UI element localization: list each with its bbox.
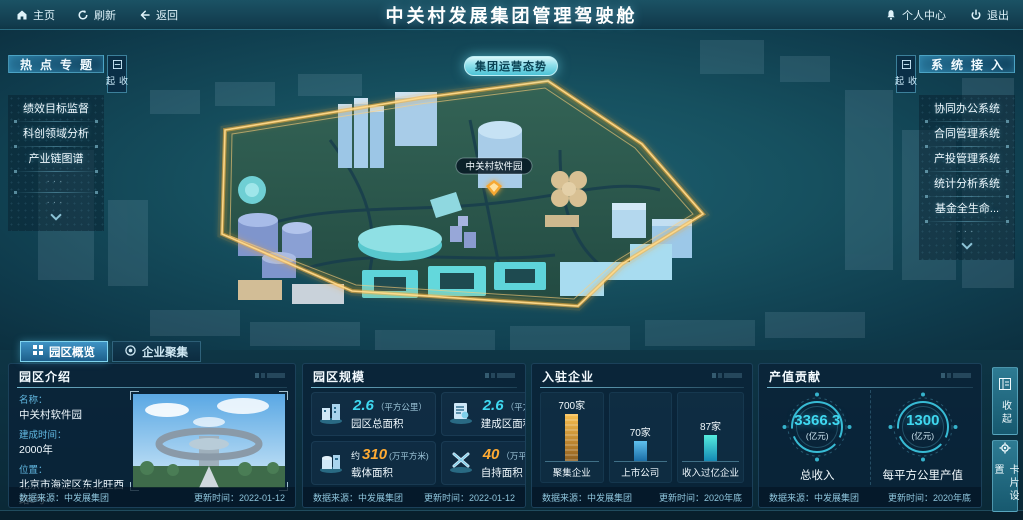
- panel-title: 园区介绍: [9, 364, 295, 388]
- divider: [14, 146, 98, 147]
- system-item-oa[interactable]: 协同办公系统: [919, 97, 1015, 121]
- data-source: 数据来源：中发展集团: [19, 491, 109, 504]
- system-item-fund[interactable]: 基金全生命...: [919, 197, 1015, 221]
- gauge-unit: (亿元): [806, 430, 829, 442]
- target-icon: [125, 345, 136, 359]
- stat-label: 园区总面积: [351, 416, 427, 431]
- field-label: 名称：: [19, 392, 127, 406]
- gauge-value: 3366.3: [794, 412, 840, 429]
- bar-label: 聚集企业: [545, 461, 599, 479]
- panel-footer: 数据来源：中发展集团 更新时间：2022-01-12: [303, 487, 525, 507]
- collapse-label: 收起: [104, 76, 130, 92]
- gauge-output-per-sqkm: 1300 (亿元) 每平方公里产值: [870, 390, 976, 485]
- divider: [925, 196, 1009, 197]
- home-icon: [16, 9, 28, 21]
- divider: [14, 171, 98, 172]
- divider: [14, 192, 98, 193]
- menu-item-performance[interactable]: 绩效目标监督: [8, 97, 104, 121]
- field-label: 位置：: [19, 462, 127, 476]
- stat-total-area: 2.6 （平方公里） 园区总面积: [311, 392, 436, 436]
- hot-topics-panel: 热点专题 收起 绩效目标监督 科创领域分析 产业链图谱 ··· ···: [8, 55, 130, 231]
- refresh-icon: [77, 9, 89, 21]
- tab-park-overview[interactable]: 园区概览: [20, 341, 108, 362]
- left-collapse-button[interactable]: 收起: [107, 55, 127, 93]
- tab-label: 园区概览: [49, 344, 95, 360]
- panel-footer: 数据来源：中发展集团 更新时间：2020年底: [532, 487, 752, 507]
- card-settings-button[interactable]: 卡片设置: [992, 440, 1018, 512]
- bottom-strip: [0, 510, 1023, 520]
- campus-map-3d[interactable]: 中关村软件园 集团运营态势: [0, 30, 1023, 350]
- collapse-icon: [902, 56, 911, 74]
- bar-label: 收入过亿企业: [682, 461, 739, 479]
- panel-header-deco: [941, 373, 971, 378]
- panel-header-deco: [485, 373, 515, 378]
- stat-value: 2.6: [353, 397, 374, 414]
- collapse-icon: [113, 56, 122, 74]
- panel-footer: 数据来源：中发展集团 更新时间：2020年底: [759, 487, 981, 507]
- hot-topics-title: 热点专题: [20, 56, 100, 73]
- park-intro-panel: 园区介绍 名称： 中关村软件园 建成时间： 2000年 位置： 北京市海淀区东北…: [8, 363, 296, 508]
- map-scene: 中关村软件园: [0, 30, 1023, 350]
- panel-header-deco: [712, 373, 742, 378]
- bar-value: 70家: [630, 424, 651, 439]
- panel-header-deco: [255, 373, 285, 378]
- user-center-button[interactable]: 个人中心: [885, 7, 946, 23]
- stat-label: 自持面积: [481, 465, 526, 480]
- enterprise-bar-chart: 700家 聚集企业 70家 上市公司 87家 收入过亿企业: [540, 392, 744, 483]
- divider: [925, 121, 1009, 122]
- side-button-label: 收起: [998, 400, 1013, 426]
- park-photo: [133, 394, 285, 488]
- gauge-label: 每平方公里产值: [883, 467, 964, 483]
- tab-label: 企业聚集: [142, 344, 188, 360]
- collapse-label: 收起: [893, 76, 919, 92]
- logout-label: 退出: [987, 7, 1009, 23]
- divider: [925, 171, 1009, 172]
- stat-unit: (万平方米): [389, 450, 429, 462]
- field-name: 名称： 中关村软件园: [19, 392, 127, 422]
- right-collapse-button[interactable]: 收起: [896, 55, 916, 93]
- data-source: 数据来源：中发展集团: [769, 491, 859, 504]
- update-time: 更新时间：2020年底: [659, 491, 742, 504]
- stat-prefix: 约: [351, 449, 360, 462]
- dashboard-screen: 中关村发展集团管理驾驶舱 主页 刷新 返回 个人中心 退出: [0, 0, 1023, 520]
- grid-icon: [33, 345, 43, 358]
- gear-icon: [999, 441, 1011, 459]
- divider: [925, 221, 1009, 222]
- stat-unit: （万平方米）: [501, 450, 526, 462]
- power-icon: [970, 9, 982, 21]
- data-source: 数据来源：中发展集团: [313, 491, 403, 504]
- buildings-icon: [318, 399, 344, 430]
- stat-value: 2.6: [483, 397, 504, 414]
- bar-label: 上市公司: [614, 461, 668, 479]
- system-access-header: 系统接入: [919, 55, 1015, 73]
- group-operation-button[interactable]: 集团运营态势: [464, 56, 558, 76]
- bar-value: 700家: [558, 397, 585, 412]
- bar: [565, 414, 578, 461]
- back-label: 返回: [156, 7, 178, 23]
- system-item-investment[interactable]: 产投管理系统: [919, 147, 1015, 171]
- panel-footer: 数据来源：中发展集团 更新时间：2022-01-12: [9, 487, 295, 507]
- top-right-nav: 个人中心 退出: [885, 7, 1023, 23]
- refresh-label: 刷新: [94, 7, 116, 23]
- update-time: 更新时间：2020年底: [888, 491, 971, 504]
- divider: [14, 121, 98, 122]
- tab-enterprise-cluster[interactable]: 企业聚集: [112, 341, 201, 362]
- park-scale-panel: 园区规模 2.6 （平方公里） 园区总面积: [302, 363, 526, 508]
- system-access-panel: 系统接入 收起 协同办公系统 合同管理系统 产投管理系统 统计分析系统 基金全生…: [896, 55, 1018, 260]
- bar-revenue-over-100m: 87家 收入过亿企业: [677, 392, 744, 483]
- stat-unit: （平方公里）: [506, 401, 526, 413]
- back-arrow-icon: [138, 9, 151, 21]
- collapse-cards-button[interactable]: 收起: [992, 367, 1018, 435]
- cross-arrows-icon: [448, 448, 474, 479]
- document-icon: [448, 399, 474, 430]
- stat-unit: （平方公里）: [376, 401, 427, 413]
- bottom-tabs: 园区概览 企业聚集: [20, 341, 201, 362]
- update-time: 更新时间：2022-01-12: [194, 491, 285, 504]
- output-value-panel: 产值贡献 3366.3 (亿元) 总收入: [758, 363, 982, 508]
- refresh-button[interactable]: 刷新: [77, 7, 116, 23]
- bar: [704, 435, 717, 461]
- bar-value: 87家: [700, 418, 721, 433]
- stat-self-held-area: 40 （万平方米） 自持面积: [441, 441, 526, 485]
- bar-clustered-enterprises: 700家 聚集企业: [540, 392, 604, 483]
- menu-item-industry-chain[interactable]: 产业链图谱: [8, 147, 104, 171]
- gauge-unit: (亿元): [911, 430, 934, 442]
- collapse-panel-icon: [999, 377, 1011, 395]
- top-nav: 主页 刷新 返回: [0, 7, 194, 23]
- logout-button[interactable]: 退出: [970, 7, 1009, 23]
- stat-value: 40: [483, 446, 500, 463]
- system-access-title: 系统接入: [931, 56, 1011, 73]
- field-label: 建成时间：: [19, 427, 127, 441]
- stat-label: 建成区面积: [481, 416, 526, 431]
- hot-topics-header: 热点专题: [8, 55, 104, 73]
- gauge-value: 1300: [906, 412, 939, 429]
- data-source: 数据来源：中发展集团: [542, 491, 632, 504]
- stat-value: 310: [362, 446, 387, 463]
- field-value: 中关村软件园: [19, 407, 127, 422]
- menu-item-tech-analysis[interactable]: 科创领域分析: [8, 122, 104, 146]
- user-center-label: 个人中心: [902, 7, 946, 23]
- system-item-contract[interactable]: 合同管理系统: [919, 122, 1015, 146]
- stat-label: 载体面积: [351, 465, 429, 480]
- gauge-label: 总收入: [800, 467, 835, 483]
- resident-enterprises-panel: 入驻企业 700家 聚集企业 70家 上市公司 87家 收入过亿企业 数据来源：…: [531, 363, 753, 508]
- bar: [634, 441, 647, 461]
- bar-listed-companies: 70家 上市公司: [609, 392, 673, 483]
- more-items-indicator: ···: [8, 172, 104, 192]
- warehouse-icon: [318, 448, 344, 479]
- field-built-year: 建成时间： 2000年: [19, 427, 127, 457]
- field-value: 2000年: [19, 442, 127, 457]
- side-button-label: 卡片设置: [990, 464, 1020, 511]
- bell-icon: [885, 9, 897, 21]
- home-button[interactable]: 主页: [16, 7, 55, 23]
- home-label: 主页: [33, 7, 55, 23]
- park-marker-label: 中关村软件园: [465, 161, 522, 173]
- stat-built-area: 2.6 （平方公里） 建成区面积: [441, 392, 526, 436]
- update-time: 更新时间：2022-01-12: [424, 491, 515, 504]
- divider: [925, 146, 1009, 147]
- chevron-down-icon[interactable]: [8, 213, 104, 227]
- top-header-bar: 中关村发展集团管理驾驶舱 主页 刷新 返回 个人中心 退出: [0, 0, 1023, 30]
- stat-carrier-area: 约 310 (万平方米) 载体面积: [311, 441, 436, 485]
- gauge-total-revenue: 3366.3 (亿元) 总收入: [765, 390, 870, 485]
- system-item-statistics[interactable]: 统计分析系统: [919, 172, 1015, 196]
- chevron-down-icon[interactable]: [919, 242, 1015, 256]
- back-button[interactable]: 返回: [138, 7, 178, 23]
